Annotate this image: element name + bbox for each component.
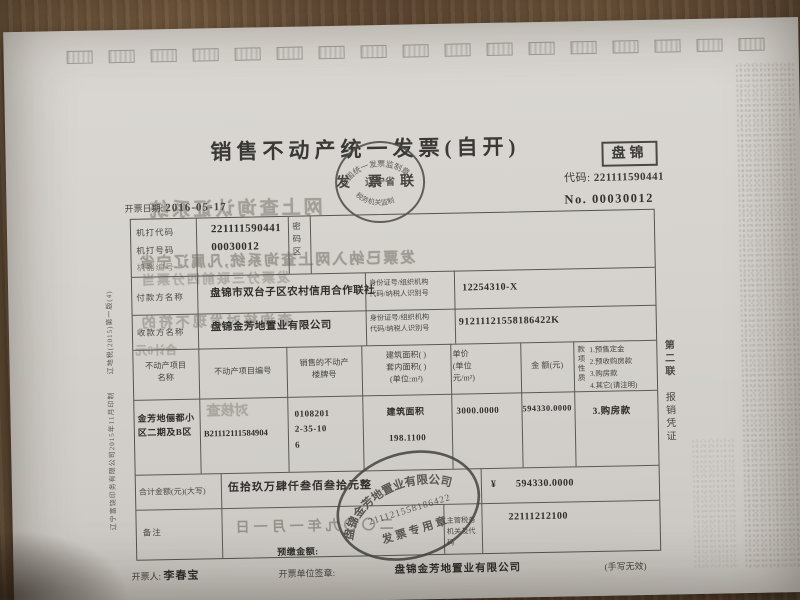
invoice-no-value: 00030012 xyxy=(592,191,654,206)
total-numeric: 594330.0000 xyxy=(516,477,574,491)
machine-number-value: 00030012 xyxy=(211,240,259,255)
issuing-unit-field: 开票单位签章: xyxy=(278,566,335,580)
prepay-label: 预缴金额: xyxy=(277,546,319,558)
printer-info: 辽宁富饶印务有限公司2015年11月印制 辽地税(2015)第一版(4) xyxy=(103,240,119,530)
bleed-box xyxy=(360,45,386,58)
payment-option-1: 1.预售定金 xyxy=(589,343,637,356)
bleed-box xyxy=(444,43,470,56)
machine-code-label: 机打代码 xyxy=(136,227,174,238)
currency-symbol: ¥ xyxy=(491,479,497,492)
building-no-line2: 2-35-10 xyxy=(295,421,330,437)
svg-text:税务机关监制: 税务机关监制 xyxy=(354,190,396,208)
bleed-box xyxy=(570,41,596,54)
payee-id-label: 身份证号/组织机构 代码/纳税人识别号 xyxy=(370,312,430,335)
copy-number-side: 第二联 xyxy=(660,339,676,378)
bleed-box xyxy=(276,47,302,60)
building-no-line3: 6 xyxy=(295,437,330,453)
bleed-box xyxy=(612,40,638,53)
payment-option-4: 4.其它(请注明) xyxy=(590,379,638,392)
header-area: 建筑面积( ) 套内面积( ) (单位:m²) xyxy=(363,349,449,386)
bleed-box xyxy=(67,51,93,64)
bleed-box xyxy=(192,48,218,61)
bleed-box xyxy=(528,42,554,55)
invoice-number: No. 00030012 xyxy=(564,191,654,208)
payer-id-label: 身份证号/组织机构 代码/纳税人识别号 xyxy=(369,277,429,300)
header-project-no: 不动产项目编号 xyxy=(202,365,284,378)
paper-stain xyxy=(735,62,800,568)
issue-date-label: 开票日期: xyxy=(124,203,163,214)
invoice-paper: 网上查询认证系统 发票已纳入网上查询系统,凡属辽宁省 发票分三联前四分票当 查询… xyxy=(3,17,800,600)
issuer-name: 李春宝 xyxy=(163,570,199,583)
issuing-unit-value: 盘锦金芳地置业有限公司 xyxy=(394,562,521,575)
total-label: 合计金额(元)(大写) xyxy=(139,486,219,498)
project-no-value: B21112111584904 xyxy=(204,427,268,439)
invoice-no-label: No. xyxy=(564,192,587,206)
bleed-through-boxes xyxy=(67,38,765,64)
payee-role-label: 收款方名称 xyxy=(137,327,185,339)
handwriting-invalid-note: (手写无效) xyxy=(604,559,646,573)
payment-option-2: 2.预收购房款 xyxy=(589,355,637,368)
bleed-box xyxy=(696,38,722,51)
header-unit-price: 单价 (单位 元/m²) xyxy=(452,348,493,384)
payment-nature-selected: 3.购房款 xyxy=(592,406,630,419)
issuing-unit-label: 开票单位签章: xyxy=(279,568,336,579)
seal-province: 辽宁省 xyxy=(365,175,395,189)
issuer-field: 开票人: 李春宝 xyxy=(131,567,199,584)
payee-name: 盘锦金芳地置业有限公司 xyxy=(211,319,332,334)
bleed-box xyxy=(234,47,260,60)
remark-label: 备注 xyxy=(143,527,162,538)
payee-id: 91211121558186422K xyxy=(459,315,560,329)
machine-code-value: 221111590441 xyxy=(211,222,281,237)
header-payment-nature: 款项性质 xyxy=(576,345,586,401)
unit-price-value: 3000.0000 xyxy=(456,405,499,417)
header-building-no: 销售的不动产 楼牌号 xyxy=(288,356,359,381)
bleed-box xyxy=(109,50,135,63)
invoice-code-label: 代码: xyxy=(564,172,591,185)
note-text: (手写无效) xyxy=(604,561,646,572)
issuing-unit-name: 盘锦金芳地置业有限公司 xyxy=(394,559,521,576)
invoice-code: 代码: 221111590441 xyxy=(506,168,664,187)
project-name-value: 金芳地俪都小区二期及B区 xyxy=(137,412,198,440)
print-code: 辽地税(2015)第一版(4) xyxy=(105,291,115,375)
area-type-value: 建筑面积 xyxy=(386,406,424,418)
payer-role-label: 付款方名称 xyxy=(136,292,184,304)
paper-stain xyxy=(691,438,738,569)
printer-company: 辽宁富饶印务有限公司2015年11月印制 xyxy=(107,391,118,530)
tax-org-code: 22111212100 xyxy=(508,511,568,525)
amount-value: 594330.0000 xyxy=(522,403,572,414)
issuer-label: 开票人: xyxy=(132,571,162,582)
seal-arc-bottom: 税务机关监制 xyxy=(354,190,396,208)
bleed-box xyxy=(654,39,680,52)
machine-device-label: 机器编号 xyxy=(137,262,175,273)
issue-date: 开票日期: 2016-05-17 xyxy=(124,200,226,215)
payer-name: 盘锦市双台子区农村信用合作联社 xyxy=(210,284,375,300)
building-no-value: 0108201 2-35-10 6 xyxy=(294,406,330,453)
machine-number-label: 机打号码 xyxy=(136,245,174,256)
header-amount: 金 额(元) xyxy=(523,359,572,372)
bleed-box xyxy=(486,42,512,55)
payer-id: 12254310-X xyxy=(462,281,518,295)
payment-nature-options: 1.预售定金 2.预收购房款 3.购房款 4.其它(请注明) xyxy=(589,343,637,391)
header-project-name: 不动产项目 名称 xyxy=(134,360,196,385)
bleed-box xyxy=(402,44,428,57)
issue-date-value: 2016-05-17 xyxy=(165,201,227,214)
password-area-label: 密码区 xyxy=(291,222,303,272)
bleed-box xyxy=(738,38,764,51)
bleed-box xyxy=(151,49,177,62)
region-name: 盘锦 xyxy=(601,141,657,167)
invoice-form: 网上查询认证系统 发票已纳入网上查询系统,凡属辽宁省 发票分三联前四分票当 查询… xyxy=(3,17,800,600)
building-no-line1: 0108201 xyxy=(294,406,329,422)
payment-option-3: 3.购房款 xyxy=(590,367,638,380)
copy-use-side: 报销凭证 xyxy=(661,391,677,443)
invoice-code-value: 221111590441 xyxy=(594,171,664,184)
bleed-box xyxy=(318,46,344,59)
